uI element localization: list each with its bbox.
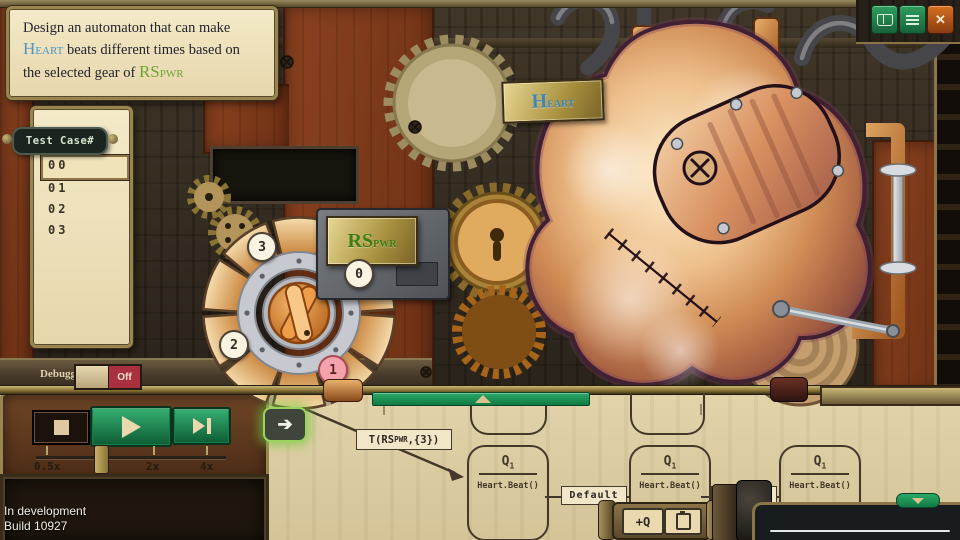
advance-arrow-button[interactable]: ➔ — [263, 407, 307, 442]
build-line-2: Build 10927 — [4, 519, 86, 534]
step-button[interactable] — [172, 407, 231, 445]
node-rule — [641, 473, 699, 475]
node-body: Heart.Beat() — [781, 481, 859, 491]
speed-label-05x: 0.5x — [34, 460, 61, 473]
scroll-down-button[interactable] — [896, 493, 940, 508]
hamburger-icon — [906, 15, 919, 25]
play-button[interactable] — [90, 406, 172, 447]
test-case-row-03[interactable]: 03 — [48, 223, 98, 241]
manual-button[interactable] — [871, 5, 898, 34]
node-body: Heart.Beat() — [631, 481, 709, 491]
build-line-1: In development — [4, 504, 86, 519]
debugger-toggle[interactable]: Off — [74, 364, 142, 390]
transition-tooltip: T(RSPWR,{3}) — [356, 429, 452, 450]
speed-slider-track[interactable] — [36, 456, 226, 459]
step-icon — [193, 418, 205, 434]
book-icon — [877, 14, 893, 26]
stop-button[interactable] — [32, 410, 90, 445]
speed-label-2x: 2x — [146, 460, 159, 473]
add-state-button[interactable]: +Q — [622, 508, 664, 535]
node-body: Heart.Beat() — [469, 481, 547, 491]
test-cases-title-plaque: Test Case# — [12, 127, 108, 155]
test-case-row-02[interactable]: 02 — [48, 202, 98, 220]
instruction-panel: Design an automaton that can make HEART … — [6, 6, 278, 100]
build-info: In development Build 10927 — [4, 504, 86, 534]
toggle-state: Off — [109, 366, 140, 388]
speed-slider-handle[interactable] — [94, 445, 109, 474]
game-screen: HEART RSPWR 0 1 2 3 Q1 Heart.Beat() Q1 H… — [0, 0, 960, 540]
speed-label-4x: 4x — [200, 460, 213, 473]
stop-icon — [54, 420, 69, 435]
x-icon: ✕ — [935, 12, 946, 28]
triangle-down-icon — [912, 498, 924, 504]
node-rule — [479, 473, 537, 475]
test-case-row-00[interactable]: 00 — [48, 158, 98, 176]
state-node-q1-a[interactable]: Q1 Heart.Beat() — [467, 445, 549, 540]
brass-mechanism — [820, 386, 960, 406]
console-input-line — [770, 530, 950, 532]
test-case-row-01[interactable]: 01 — [48, 181, 98, 199]
instruction-text: Design an automaton that can make — [23, 20, 230, 36]
arrow-right-icon: ➔ — [277, 414, 292, 435]
node-rule — [791, 473, 849, 475]
node-title: Q1 — [469, 454, 547, 471]
toggle-knob — [76, 366, 109, 388]
clipboard-icon — [676, 513, 691, 530]
play-icon — [122, 416, 141, 438]
close-button[interactable]: ✕ — [927, 5, 954, 34]
menu-button[interactable] — [899, 5, 926, 34]
node-title: Q1 — [631, 454, 709, 471]
paste-button[interactable] — [664, 508, 702, 535]
node-title: Q1 — [781, 454, 859, 471]
